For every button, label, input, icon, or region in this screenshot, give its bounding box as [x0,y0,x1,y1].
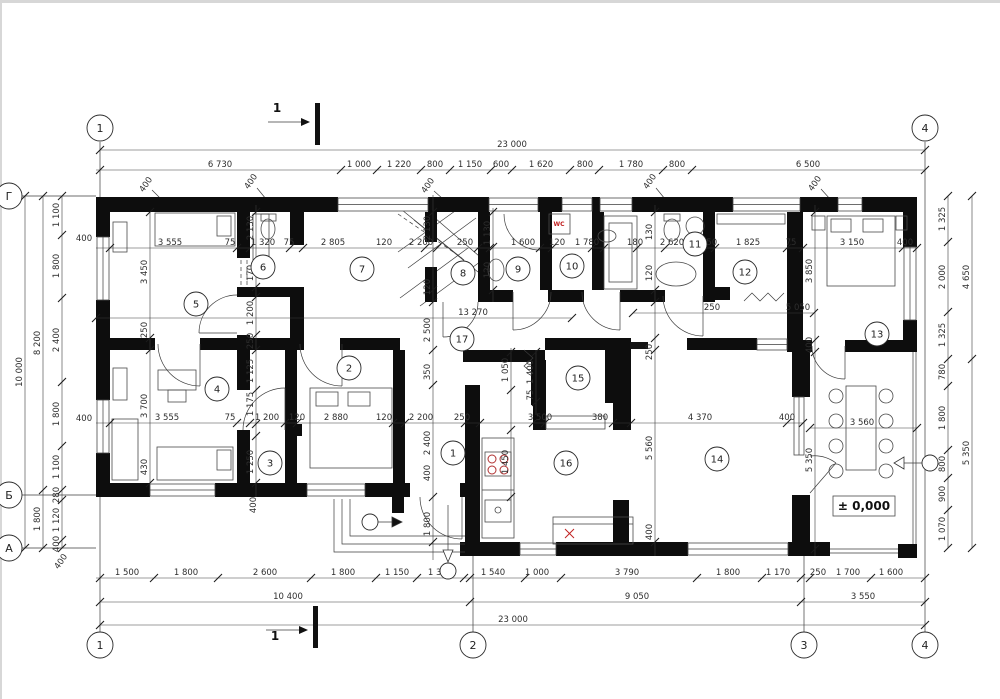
dimension-label: 5 350 [805,448,815,472]
wall [898,544,917,558]
dimension-label: 75 [526,390,536,401]
fixture [829,389,843,403]
fixture [879,464,893,478]
furniture [863,219,883,232]
fixture [656,262,696,286]
dimension-label: 12 [739,268,752,279]
dimension-label: 400 [423,465,433,481]
dimension-label: 75 [225,413,236,423]
dimension-label: 1 220 [387,160,411,170]
fixture [829,439,843,453]
dimension-label: 1 825 [736,238,760,248]
dimension-label: 23 000 [497,140,527,150]
dimension-label: 1 700 [836,568,860,578]
dimension-label: 6 500 [796,160,820,170]
dimension-label: 3 [801,639,808,652]
dimension-label: 1 620 [529,160,553,170]
dimension-label: 8 200 [33,331,43,355]
dimension-label: 250 [246,333,256,349]
wall [340,338,400,350]
dimension-label: 1 [273,101,281,115]
dimension-label: 1 000 [525,568,549,578]
wall [96,483,150,497]
dimension-label: 400 [53,552,71,571]
dimension-label: 13 270 [458,308,488,318]
dimension-label: 1 070 [938,517,948,541]
dimension-label: 120 [549,238,565,248]
dimension-label: 10 000 [15,357,25,387]
dimension-label: 4 [922,639,929,652]
dimension-label: 1 [97,639,104,652]
dimension-label: 4 [214,385,220,396]
wall [592,212,604,290]
dimension-label: 6 [260,263,266,274]
dimension-label: 400 [138,175,156,194]
dimension-label: 75 [225,238,236,248]
dimension-label: 1 800 [716,568,740,578]
dimension-label: 2 130 [246,216,256,240]
dimension-label: 2 600 [253,568,277,578]
dimension-label: 800 [669,160,685,170]
dimension-label: 400 [645,524,655,540]
furniture [310,388,392,468]
dimension-label: 1 050 [501,358,511,382]
dimension-label: 1 540 [481,568,505,578]
dimension-label: 400 [897,238,913,248]
dimension-label: 1 600 [511,238,535,248]
wall [540,212,552,290]
dimension-label: 400 [779,413,795,423]
wall [480,290,513,302]
wall [787,212,803,340]
furniture [158,370,196,390]
dimension-label: 5 [193,300,199,311]
dimension-label: 5 560 [645,436,655,460]
dimension-label: 1 800 [938,406,948,430]
dimension-label: 5 050 [786,303,810,313]
door-arc [513,292,551,330]
dimension-label: 1 130 [483,221,493,245]
scan-edge [0,0,1000,3]
furniture [112,419,138,480]
dimension-label: 1 600 [879,568,903,578]
dimension-label: 4 650 [962,265,972,289]
dimension-label: 900 [938,486,948,502]
wall [792,352,810,397]
dimension-label: 400 [420,176,438,195]
wall [200,338,237,350]
dimension-label: 2 620 [660,238,684,248]
furniture [113,222,127,252]
dimension-label: 3 555 [155,413,179,423]
dimension-label: 1 325 [938,323,948,347]
dimension-label: 800 [427,160,443,170]
wall [703,287,730,300]
wall [392,497,404,513]
dimension-label: 1 780 [619,160,643,170]
dimension-label: 400 [76,414,92,424]
dimension-label: 15 [572,374,585,385]
dimension-label: 1 150 [458,160,482,170]
dimension-label: 3 560 [850,418,874,428]
floor-plan-canvas: 23 0006 7301 0001 2208001 1506001 620800… [0,0,1000,699]
furniture [217,216,231,236]
furniture [217,450,231,470]
wall [538,197,562,212]
dimension-label: 130 [645,224,655,240]
dimension-label: 3 150 [840,238,864,248]
furniture [664,214,680,221]
dimension-label: 1 500 [115,568,139,578]
furniture [812,216,825,230]
dimension-label: 3 550 [851,592,875,602]
door-arc [582,292,620,330]
wall [465,385,480,497]
dimension-label: 120 [376,413,392,423]
dimension-label: 2 [470,639,477,652]
wall [96,197,110,237]
dimension-label: 350 [423,364,433,380]
dimension-label: 1 100 [52,203,62,227]
dimension-label: 2 400 [423,431,433,455]
dimension-label: 3 500 [528,413,552,423]
dimension-label: 800 [577,160,593,170]
wall [463,350,533,362]
dimension-label: 1 120 [52,508,62,532]
section-arrowhead [299,626,308,634]
fixture [829,464,843,478]
dimension-label: 3 555 [158,238,182,248]
fixture [879,414,893,428]
door-arc [812,346,845,379]
furniture [316,392,338,406]
dimension-label: 10 [566,262,579,273]
dimension-label: 380 [592,413,608,423]
dimension-label: 1 200 [246,301,256,325]
dimension-label: 120 [376,238,392,248]
leader-arrow [443,550,453,562]
dimension-label: 4 [922,122,929,135]
wall [613,500,629,542]
dimension-label: 4 370 [688,413,712,423]
dimension-label: 6 730 [208,160,232,170]
dimension-label: WC [553,221,565,228]
dimension-label: 3 [267,459,273,470]
dimension-label: 2 130 [423,216,433,240]
dimension-label: 1 [450,449,456,460]
dimension-label: 1 100 [52,455,62,479]
dimension-label: 8 [460,269,466,280]
dimension-label: 3 700 [140,394,150,418]
wall [687,338,757,350]
dimension-label: 11 [689,240,702,251]
wall [237,287,304,297]
dimension-label: 1 325 [938,207,948,231]
dimension-label: 400 [249,497,259,513]
dimension-label: 1 175 [246,392,256,416]
scan-edge [0,0,2,699]
dimension-label: А [5,542,13,555]
dimension-label: 9 [515,265,521,276]
dimension-label: 250 [645,344,655,360]
dimension-label: 2 500 [423,318,433,342]
wall [792,495,810,556]
wall [365,483,410,497]
leader-arrow [894,457,904,469]
fixture [879,439,893,453]
wall [96,338,155,350]
furniture [717,214,785,224]
dimension-label: 1 800 [331,568,355,578]
dimension-label: 120 [289,413,305,423]
dimension-label: 7 [359,265,365,276]
dimension-label: 1 250 [246,450,256,474]
section-mark [313,606,318,648]
dimension-label: 250 [810,568,826,578]
dimension-label: Б [5,489,13,502]
dimension-label: 1 000 [347,160,371,170]
dimension-label: 250 [454,413,470,423]
dimension-label: 75 [786,238,797,248]
dimension-label: 250 [704,303,720,313]
fixture [261,219,275,239]
dimension-label: 250 [140,322,150,338]
reference-circle [362,514,378,530]
wall [620,290,665,302]
dimension-label: 1 150 [385,568,409,578]
dimension-label: 9 050 [625,592,649,602]
dimension-label: 16 [560,459,573,470]
dimension-label: 400 [52,536,62,552]
furniture [157,447,233,480]
dimension-label: 1 [97,122,104,135]
dimension-label: 1 800 [423,512,433,536]
dimension-label: 400 [807,174,825,193]
fixture [495,507,501,513]
wall [96,197,338,212]
dimension-label: 400 [805,337,815,353]
wall [428,197,489,212]
floor-plan-page: 23 0006 7301 0001 2208001 1506001 620800… [0,0,1000,699]
dimension-label: 1 800 [52,254,62,278]
dimension-label: 17 [456,335,469,346]
dimension-label: 1 125 [246,359,256,383]
door-arc [663,296,703,336]
dimension-label: 3 450 [140,260,150,284]
fixture [829,414,843,428]
dimension-label: 120 [423,279,433,295]
dimension-label: 1 800 [52,402,62,426]
dimension-label: 430 [140,459,150,475]
wall [215,483,307,497]
dimension-label: 1 780 [575,238,599,248]
section-arrowhead [301,118,310,126]
stove-burner-icon [488,455,496,463]
furniture [485,500,511,522]
dimension-label: 2 000 [938,265,948,289]
dimension-label: 2 [346,364,352,375]
dimension-label: ± 0,000 [838,499,890,513]
dimension-label: 1 400 [526,360,536,384]
dimension-label: 2 880 [324,413,348,423]
wall [545,338,613,350]
dimension-label: 75 [284,238,295,248]
section-mark [315,103,320,145]
dimension-label: 600 [493,160,509,170]
door-arc [744,293,784,301]
reference-circle [922,455,938,471]
fixture [879,389,893,403]
dimension-label: 13 [871,330,884,341]
dimension-label: 1 800 [174,568,198,578]
furniture [827,216,895,286]
dimension-label: 1 170 [766,568,790,578]
dimension-label: 3 790 [615,568,639,578]
wall [800,197,838,212]
furniture [113,368,127,400]
dimension-label: 120 [645,265,655,281]
dimension-label: 280 [52,487,62,503]
dimension-label: 23 000 [498,615,528,625]
wall [465,497,480,542]
wall [460,542,520,556]
dimension-label: 120 [483,262,493,278]
wall [632,197,733,212]
dimension-label: 180 [627,238,643,248]
dimension-label: 250 [457,238,473,248]
wall [393,350,405,483]
dimension-label: 2 200 [409,413,433,423]
dimension-label: 14 [711,455,724,466]
furniture [168,390,186,402]
dimension-label: 5 350 [962,441,972,465]
wall [548,290,584,302]
dimension-label: 2 400 [52,328,62,352]
dimension-label: 10 400 [273,592,303,602]
dimension-label: 780 [938,364,948,380]
door-arc [158,344,200,386]
leader-arrow [392,517,402,527]
wall [592,197,600,212]
furniture [831,219,851,232]
dimension-label: 1 [271,629,279,643]
furniture [348,392,370,406]
dimension-label: 1 450 [501,450,511,474]
furniture [609,223,632,282]
stove-burner-icon [488,466,496,474]
dimension-label: Г [6,190,13,203]
dimension-label: 400 [76,234,92,244]
door-arc [300,344,342,386]
reference-circle [440,563,456,579]
dimension-label: 2 805 [321,238,345,248]
dimension-label: 800 [938,456,948,472]
dimension-label: 1 800 [33,507,43,531]
wall [613,338,631,430]
furniture [261,214,276,221]
dimension-label: 3 850 [805,259,815,283]
